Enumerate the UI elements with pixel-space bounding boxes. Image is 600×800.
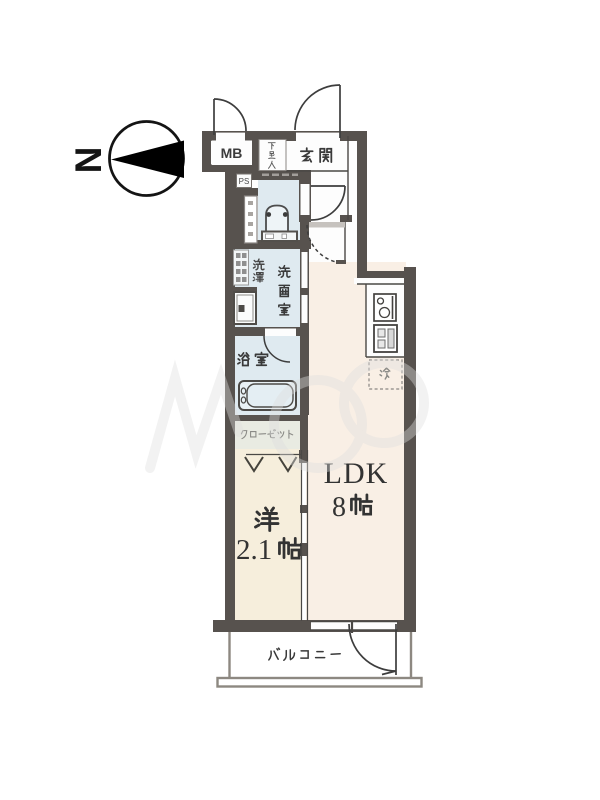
svg-text:8: 8 (332, 492, 346, 523)
svg-text:2.1: 2.1 (236, 534, 272, 566)
svg-text:PS: PS (239, 177, 250, 186)
svg-text:N: N (68, 147, 109, 174)
svg-text:MB: MB (221, 145, 243, 161)
